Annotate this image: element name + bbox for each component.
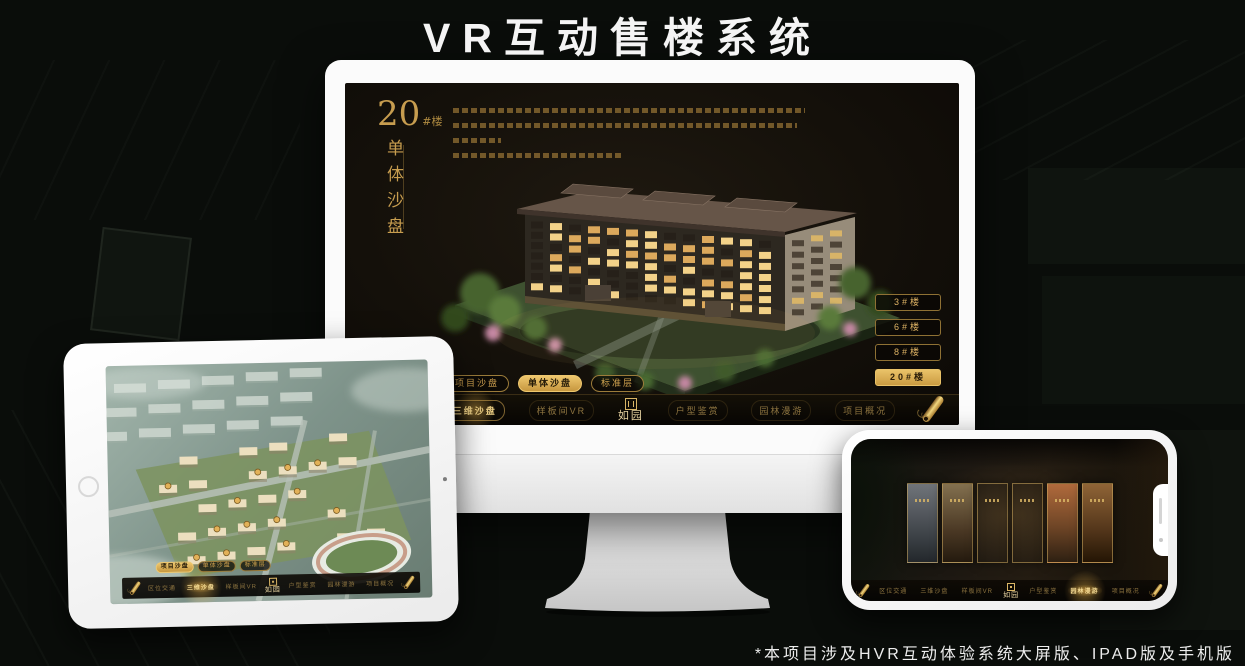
poster-stage: VR互动售楼系统 20#楼 单体沙盘: [0, 0, 1245, 666]
page-title: VR互动售楼系统: [0, 4, 1245, 64]
brand-logo[interactable]: 如园: [265, 577, 281, 593]
brand-logo[interactable]: 如园: [618, 398, 644, 422]
description-text-block: [453, 108, 805, 168]
sandtable-subtitle: 单体沙盘: [381, 139, 406, 259]
brand-name: 如园: [265, 586, 281, 593]
nav-item[interactable]: 区位交通: [876, 585, 910, 596]
main-navbar: 区位交通三维沙盘样板间VR如园户型鉴赏园林漫游项目概况: [851, 580, 1168, 601]
nav-item[interactable]: 园林漫游: [1068, 585, 1102, 596]
tablet-screen: 项目沙盘单体沙盘标准层 区位交通三维沙盘样板间VR如园户型鉴赏园林漫游项目概况: [106, 359, 433, 604]
panorama-thumbnail[interactable]: [1082, 483, 1113, 563]
panorama-thumbnail[interactable]: [907, 483, 938, 563]
view-tab[interactable]: 单体沙盘: [518, 375, 582, 392]
speaker-icon: [1159, 498, 1162, 524]
nav-item[interactable]: 区位交通: [145, 582, 179, 594]
description-line: [453, 108, 805, 113]
phone-device: 区位交通三维沙盘样板间VR如园户型鉴赏园林漫游项目概况: [842, 430, 1177, 610]
camera-icon: [443, 477, 447, 481]
seal-icon: [1007, 583, 1015, 591]
nav-item[interactable]: 户型鉴赏: [668, 400, 728, 421]
background-map-texture: [0, 60, 300, 220]
description-line: [453, 138, 501, 143]
floor-button-group: 3#楼6#楼8#楼20#楼: [875, 294, 941, 394]
tablet-device: 项目沙盘单体沙盘标准层 区位交通三维沙盘样板间VR如园户型鉴赏园林漫游项目概况: [63, 336, 459, 629]
building-number: 20: [377, 94, 420, 134]
building-headline: 20#楼 单体沙盘: [377, 97, 442, 259]
nav-item[interactable]: 户型鉴赏: [1026, 585, 1060, 596]
home-button-icon[interactable]: [78, 475, 99, 496]
brand-name: 如园: [618, 411, 644, 422]
panorama-thumbnail[interactable]: [977, 483, 1008, 563]
monitor-stand: [540, 511, 775, 619]
view-tab[interactable]: 标准层: [591, 375, 644, 392]
view-tab[interactable]: 标准层: [240, 560, 271, 572]
scroll-icon[interactable]: [857, 584, 869, 597]
description-line: [453, 123, 797, 128]
phone-screen: 区位交通三维沙盘样板间VR如园户型鉴赏园林漫游项目概况: [851, 439, 1168, 601]
nav-item[interactable]: 园林漫游: [324, 578, 358, 590]
nav-item[interactable]: 项目概况: [835, 400, 895, 421]
interior-foliage: [851, 439, 915, 601]
background-plaque: [90, 227, 192, 341]
footnote-text: *本项目涉及HVR互动体验系统大屏版、IPAD版及手机版: [755, 640, 1235, 664]
panorama-thumbnail-strip: [907, 483, 1113, 563]
nav-item[interactable]: 样板间VR: [529, 400, 595, 421]
phone-notch: [1153, 484, 1168, 556]
brand-logo[interactable]: 如园: [1003, 583, 1019, 599]
background-photo: [1042, 276, 1245, 404]
nav-item[interactable]: 项目概况: [363, 577, 397, 589]
building-3d-viewport[interactable]: [385, 133, 925, 395]
building-unit: #楼: [422, 115, 442, 128]
nav-item[interactable]: 园林漫游: [751, 400, 811, 421]
nav-item[interactable]: 样板间VR: [223, 580, 261, 592]
interior-ceiling: [851, 439, 1168, 467]
scroll-icon[interactable]: [402, 576, 414, 589]
scroll-icon[interactable]: [919, 397, 943, 423]
floor-button[interactable]: 3#楼: [875, 294, 941, 311]
panorama-thumbnail[interactable]: [942, 483, 973, 563]
scroll-icon[interactable]: [1150, 584, 1162, 597]
camera-icon: [1159, 538, 1163, 542]
nav-item[interactable]: 户型鉴赏: [285, 579, 319, 591]
nav-item[interactable]: 三维沙盘: [917, 585, 951, 596]
brand-name: 如园: [1003, 592, 1019, 599]
description-line: [453, 153, 621, 158]
seal-icon: [625, 398, 637, 410]
seal-icon: [269, 577, 277, 585]
floor-button[interactable]: 6#楼: [875, 319, 941, 336]
panorama-thumbnail[interactable]: [1047, 483, 1078, 563]
nav-item[interactable]: 三维沙盘: [184, 581, 218, 593]
floor-button[interactable]: 8#楼: [875, 344, 941, 361]
panorama-thumbnail[interactable]: [1012, 483, 1043, 563]
floor-button[interactable]: 20#楼: [875, 369, 941, 386]
background-photo: [1028, 168, 1245, 264]
nav-item[interactable]: 样板间VR: [959, 585, 996, 596]
nav-item[interactable]: 项目概况: [1109, 585, 1143, 596]
scroll-icon[interactable]: [128, 582, 140, 595]
